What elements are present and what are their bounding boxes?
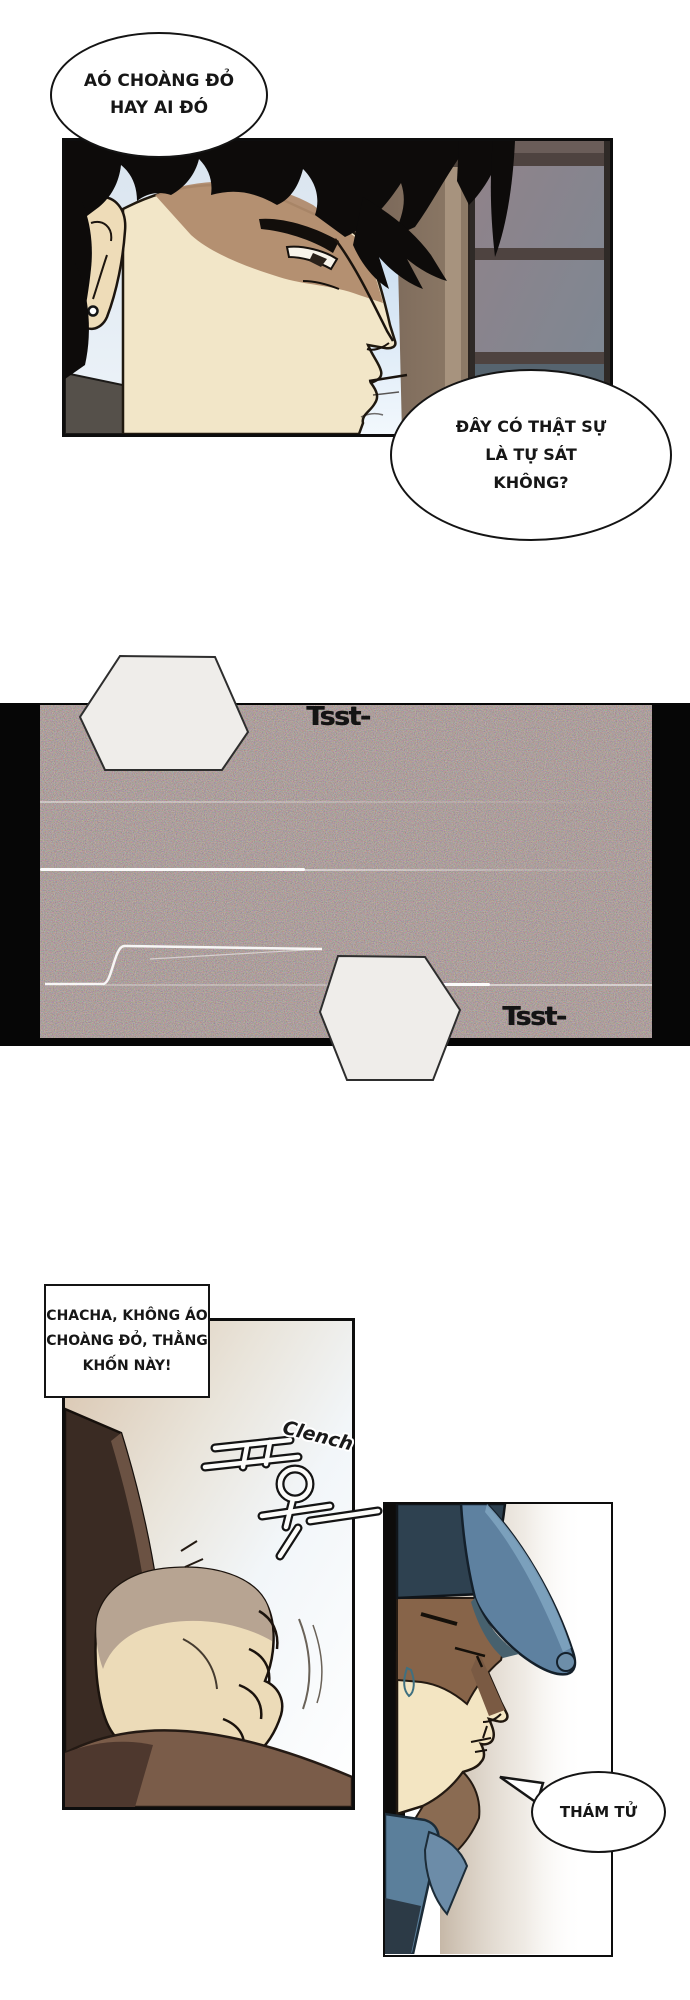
bubble-line: HAY AI ĐÓ: [110, 95, 208, 122]
hexagon-shape: [77, 652, 251, 773]
panel-cap-man-art: [385, 1504, 610, 1954]
hexagon-shape: [318, 954, 462, 1082]
comic-page: { "page": {"width": 690, "height": 2000,…: [0, 0, 690, 2000]
bubble-line: ĐÂY CÓ THẬT SỰ: [456, 413, 606, 441]
speech-bubble-detective: THÁM TỬ: [531, 1771, 666, 1853]
panel-cap-man: [383, 1502, 613, 1957]
sfx-text: Tsst-: [251, 702, 425, 732]
bubble-line: THÁM TỬ: [560, 1802, 637, 1822]
earring: [89, 307, 98, 316]
caption-box: CHACHA, KHÔNG ÁO CHOÀNG ĐỎ, THẰNG KHỐN N…: [44, 1284, 210, 1398]
bubble-line: LÀ TỰ SÁT: [485, 441, 577, 469]
bubble-line: KHÔNG?: [493, 469, 568, 497]
caption-line: CHACHA, KHÔNG ÁO: [46, 1304, 207, 1329]
speech-bubble-suicide-question: ĐÂY CÓ THẬT SỰ LÀ TỰ SÁT KHÔNG?: [390, 369, 672, 541]
sfx-tsst-bottom: Tsst-: [318, 954, 462, 1082]
speech-bubble-top-thought: AÓ CHOÀNG ĐỎ HAY AI ĐÓ: [50, 32, 268, 158]
caption-line: KHỐN NÀY!: [83, 1354, 172, 1379]
sfx-text: Tsst-: [462, 1002, 606, 1032]
bubble-line: AÓ CHOÀNG ĐỎ: [84, 68, 234, 95]
caption-line: CHOÀNG ĐỎ, THẰNG: [46, 1329, 208, 1354]
sfx-tsst-top: Tsst-: [77, 652, 251, 773]
